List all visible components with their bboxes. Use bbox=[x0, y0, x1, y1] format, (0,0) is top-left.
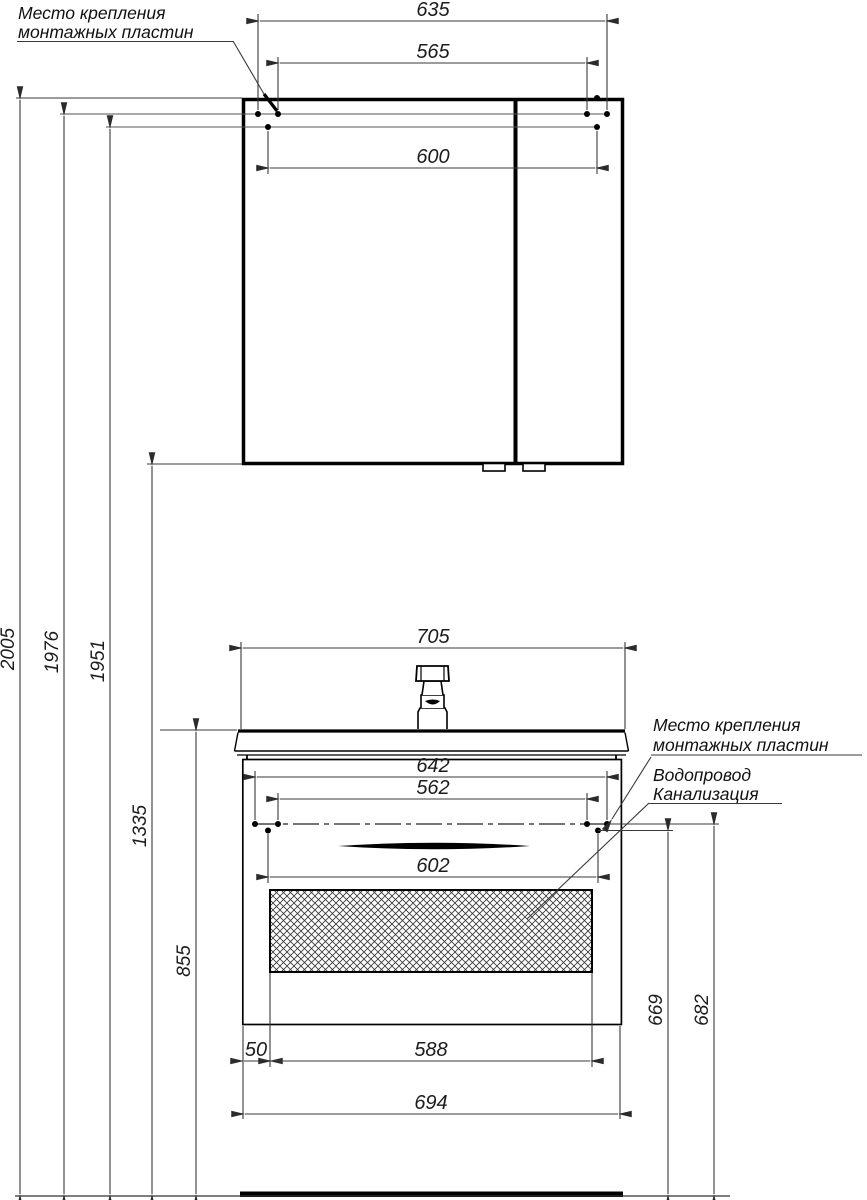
dim-669: 669 bbox=[646, 994, 667, 1026]
dim-1976: 1976 bbox=[42, 630, 63, 673]
dim-565: 565 bbox=[416, 41, 450, 63]
leader-mounting-top bbox=[233, 41, 264, 94]
mount-dot bbox=[265, 124, 271, 130]
plumbing-zone-hatch bbox=[270, 890, 592, 972]
dim-50: 50 bbox=[245, 1039, 267, 1061]
mount-dot bbox=[584, 821, 590, 827]
dim-855: 855 bbox=[174, 945, 195, 977]
technical-drawing-page: 635 565 600 705 642 562 602 50 588 694 2… bbox=[0, 0, 867, 1200]
mount-dot bbox=[594, 124, 600, 130]
mount-dot bbox=[255, 111, 261, 117]
dim-600: 600 bbox=[416, 146, 449, 168]
dim-642: 642 bbox=[416, 755, 449, 777]
dim-705: 705 bbox=[416, 626, 450, 648]
mount-dot bbox=[275, 111, 281, 117]
mount-dot bbox=[594, 95, 600, 101]
dim-602: 602 bbox=[416, 855, 449, 877]
label-mounting-right-line1: Место крепления bbox=[653, 715, 801, 735]
label-sewerage: Канализация bbox=[653, 784, 759, 804]
dim-1951: 1951 bbox=[88, 640, 109, 682]
label-mounting-top-line2: монтажных пластин bbox=[18, 22, 194, 42]
label-water-supply: Водопровод bbox=[653, 765, 751, 785]
mirror-left-door-handle bbox=[483, 464, 505, 472]
mount-dot bbox=[604, 821, 610, 827]
mount-dot bbox=[584, 111, 590, 117]
floor-line bbox=[15, 1192, 730, 1198]
faucet bbox=[416, 666, 449, 729]
mirror-right-door-handle bbox=[523, 464, 545, 472]
dim-2005: 2005 bbox=[0, 627, 19, 671]
dim-1335: 1335 bbox=[130, 804, 151, 847]
mount-dot bbox=[275, 821, 281, 827]
label-mounting-right-line2: монтажных пластин bbox=[653, 735, 829, 755]
mount-dot bbox=[604, 111, 610, 117]
dim-694: 694 bbox=[414, 1092, 447, 1114]
mount-dot bbox=[252, 821, 258, 827]
dim-635: 635 bbox=[416, 0, 450, 21]
mount-dot bbox=[265, 828, 271, 834]
dim-682: 682 bbox=[692, 994, 713, 1026]
dim-562: 562 bbox=[416, 777, 449, 799]
dim-588: 588 bbox=[414, 1039, 447, 1061]
drawing-svg: 635 565 600 705 642 562 602 50 588 694 2… bbox=[0, 0, 867, 1200]
label-mounting-top-line1: Место крепления bbox=[18, 3, 166, 23]
